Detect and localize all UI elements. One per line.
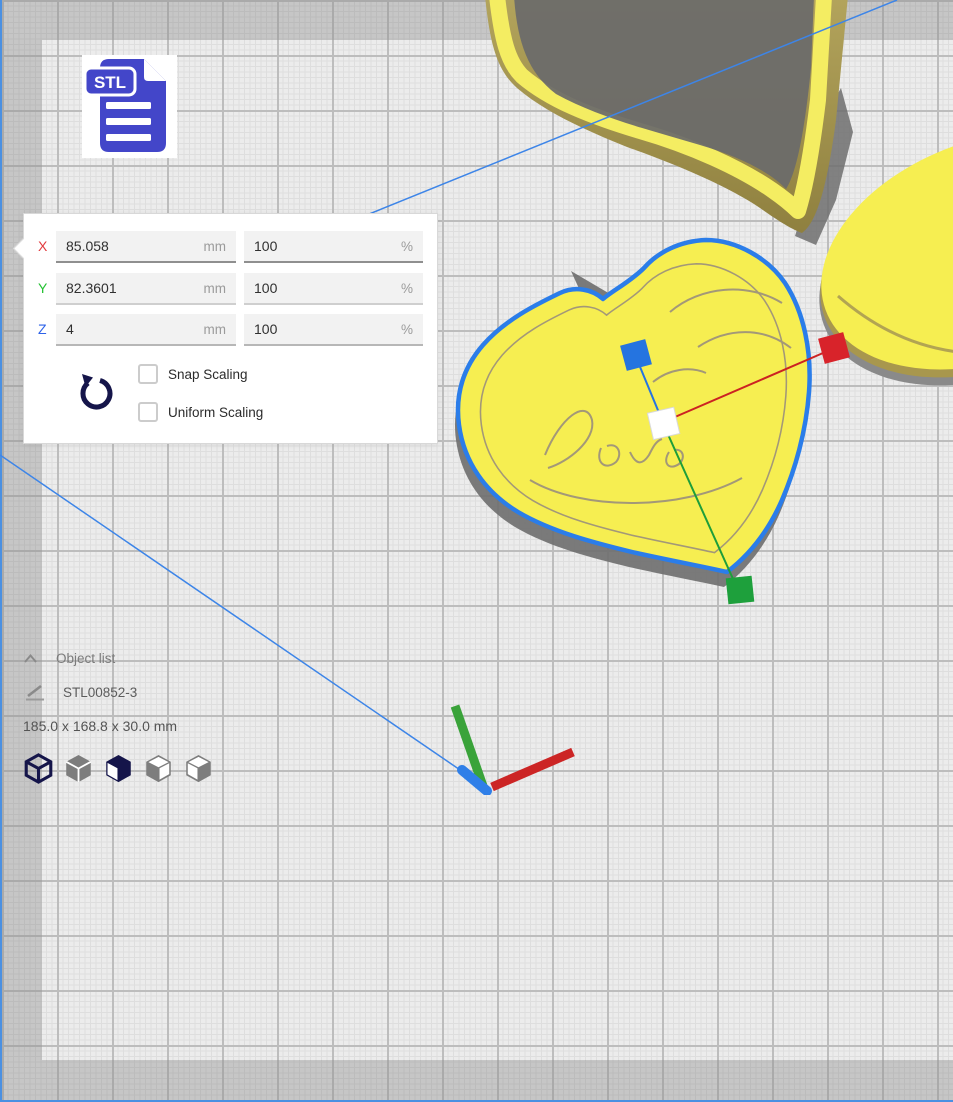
stl-doc-line (106, 102, 151, 109)
z-percent-value: 100 (254, 321, 277, 337)
snap-scaling-label: Snap Scaling (168, 367, 248, 382)
uniform-scaling-checkbox[interactable] (138, 402, 158, 422)
plate-origin-axes (455, 706, 573, 791)
x-size-unit: mm (204, 239, 227, 254)
z-percent-input[interactable]: 100 % (244, 314, 423, 346)
model-heart-stamp-selected[interactable] (455, 240, 810, 587)
view-right-icon (183, 753, 214, 784)
y-percent-input[interactable]: 100 % (244, 273, 423, 305)
uniform-scaling-row: Uniform Scaling (138, 402, 263, 422)
scale-row-z: Z 4 mm 100 % (24, 314, 437, 346)
snap-scaling-row: Snap Scaling (138, 364, 248, 384)
stl-doc-line (106, 118, 151, 125)
view-left-button[interactable] (143, 753, 174, 784)
view-front-solid-button[interactable] (63, 753, 94, 784)
y-percent-unit: % (401, 281, 413, 296)
object-name: STL00852-3 (63, 685, 137, 700)
x-percent-value: 100 (254, 238, 277, 254)
model-heart-cutter[interactable] (485, 0, 853, 245)
stl-doc-line (106, 134, 151, 141)
x-size-input[interactable]: 85.058 mm (56, 231, 236, 263)
z-percent-unit: % (401, 322, 413, 337)
y-size-input[interactable]: 82.3601 mm (56, 273, 236, 305)
snap-scaling-checkbox[interactable] (138, 364, 158, 384)
view-front-solid-icon (63, 753, 94, 784)
y-size-unit: mm (204, 281, 227, 296)
object-list-panel: Object list STL00852-3 185.0 x 168.8 x 3… (0, 640, 300, 795)
y-size-value: 82.3601 (66, 280, 117, 296)
y-percent-value: 100 (254, 280, 277, 296)
uniform-scaling-label: Uniform Scaling (168, 405, 263, 420)
object-list-item[interactable]: STL00852-3 (25, 684, 137, 701)
x-axis-indicator (492, 752, 573, 787)
view-front-button[interactable] (103, 753, 134, 784)
center-scale-handle[interactable] (647, 407, 679, 439)
z-axis-label: Z (38, 321, 54, 337)
view-3d-icon (23, 753, 54, 784)
scale-row-x: X 85.058 mm 100 % (24, 231, 437, 263)
x-percent-unit: % (401, 239, 413, 254)
view-left-icon (143, 753, 174, 784)
object-list-title: Object list (56, 651, 115, 666)
x-size-value: 85.058 (66, 238, 109, 254)
y-axis-label: Y (38, 280, 54, 296)
stl-banner-text: STL (94, 73, 126, 92)
rotate-ccw-icon (76, 374, 116, 416)
z-size-unit: mm (204, 322, 227, 337)
object-list-header[interactable]: Object list (23, 651, 115, 666)
z-size-input[interactable]: 4 mm (56, 314, 236, 346)
x-axis-label: X (38, 238, 54, 254)
view-3d-button[interactable] (23, 753, 54, 784)
camera-view-toolbar (23, 753, 214, 784)
chevron-up-icon[interactable] (23, 653, 38, 664)
stl-file-badge: STL (82, 55, 177, 158)
view-front-icon (103, 753, 134, 784)
x-percent-input[interactable]: 100 % (244, 231, 423, 263)
stl-file-icon: STL (82, 55, 177, 158)
stl-doc-fold (144, 59, 166, 81)
y-scale-handle[interactable] (726, 576, 755, 605)
scale-row-y: Y 82.3601 mm 100 % (24, 273, 437, 305)
object-dimensions: 185.0 x 168.8 x 30.0 mm (23, 718, 177, 734)
pencil-icon (25, 684, 45, 701)
z-size-value: 4 (66, 321, 74, 337)
reset-scale-button[interactable] (76, 374, 116, 416)
view-right-button[interactable] (183, 753, 214, 784)
scale-tool-panel: X 85.058 mm 100 % Y 82.3601 mm 100 % Z 4… (23, 213, 438, 444)
